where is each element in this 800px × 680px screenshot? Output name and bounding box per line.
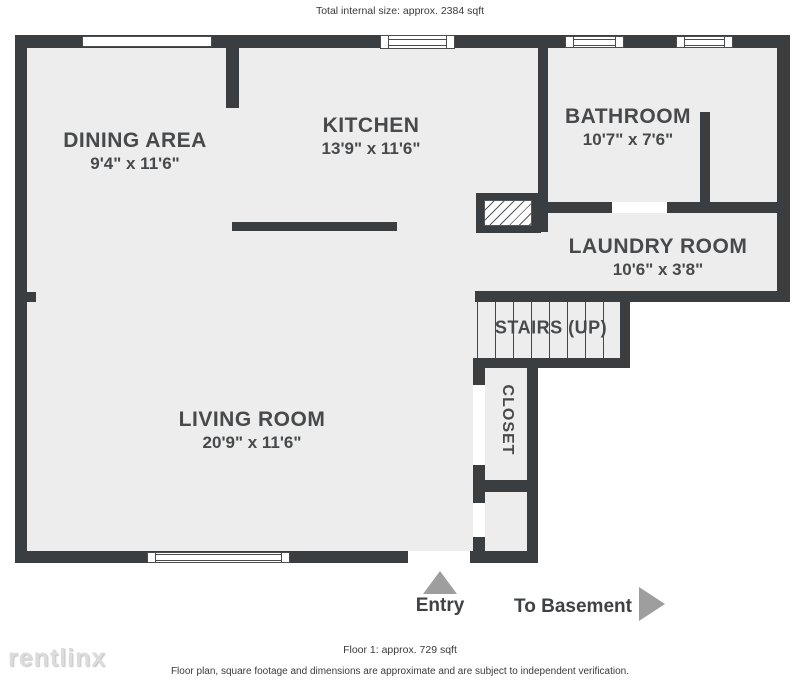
door-vestibule [473,503,485,537]
window-frame-cap [615,37,623,47]
window-frame-cap [677,37,685,47]
room-dims-kitchen: 13'9" x 11'6" [322,138,421,160]
window-glass-lines [685,39,724,46]
entry-arrow-icon [423,571,457,594]
window-glass-lines [389,39,446,46]
floor-plan-page: Total internal size: approx. 2384 sqft [0,0,800,680]
window-frame-cap [381,36,389,48]
room-label-bathroom: BATHROOM 10'7" x 7'6" [565,105,691,151]
window-glass-lines [156,554,281,561]
door-closet [473,385,485,465]
window-glass-lines [574,39,615,46]
window-frame-cap [446,36,454,48]
room-name-kitchen: KITCHEN [322,114,421,138]
disclaimer-label: Floor plan, square footage and dimension… [0,666,800,677]
room-label-closet: CLOSET [498,385,516,456]
to-basement-label: To Basement [514,596,632,618]
basement-arrow-icon [639,587,665,621]
door-bathroom [612,202,667,213]
fireplace-icon [476,193,541,233]
window-living [147,552,290,563]
window-frame-cap [566,37,574,47]
window-bathroom-2 [676,36,733,48]
window-bathroom-1 [565,36,624,48]
window-frame-cap [724,37,732,47]
room-label-living: LIVING ROOM 20'9" x 11'6" [179,408,326,454]
room-name-bathroom: BATHROOM [565,105,691,129]
wall-dining-kitchen-divider [226,48,239,108]
fireplace-hatch [484,200,532,226]
wall-laundry-bottom [475,291,790,302]
window-frame-cap [281,553,289,562]
rentlinx-watermark: rentlinx [8,644,106,673]
total-size-label: Total internal size: approx. 2384 sqft [0,5,800,17]
wall-bathroom-divider [700,112,710,213]
room-name-dining: DINING AREA [63,129,207,153]
room-label-dining: DINING AREA 9'4" x 11'6" [63,129,207,175]
window-dining [82,36,212,47]
wall-stairs-bottom [473,358,630,368]
window-frame-cap [148,553,156,562]
room-name-stairs: STAIRS (UP) [495,318,607,339]
wall-left [15,35,27,563]
entry-label: Entry [416,595,465,617]
floor-main [27,48,538,551]
room-label-laundry: LAUNDRY ROOM 10'6" x 3'8" [569,235,748,281]
wall-left-stub [27,292,36,302]
room-dims-laundry: 10'6" x 3'8" [569,259,748,281]
wall-closet-right [527,358,538,563]
wall-closet-vestibule-divider [473,480,538,492]
wall-kitchen-halfwall [232,222,397,231]
room-dims-dining: 9'4" x 11'6" [63,153,207,175]
room-dims-living: 20'9" x 11'6" [179,432,326,454]
door-entry [408,551,470,563]
window-kitchen [380,35,455,49]
room-label-kitchen: KITCHEN 13'9" x 11'6" [322,114,421,160]
room-label-stairs: STAIRS (UP) [495,318,607,339]
room-name-laundry: LAUNDRY ROOM [569,235,748,259]
room-dims-bathroom: 10'7" x 7'6" [565,129,691,151]
wall-right [777,35,790,300]
room-name-living: LIVING ROOM [179,408,326,432]
floor-size-label: Floor 1: approx. 729 sqft [0,644,800,656]
